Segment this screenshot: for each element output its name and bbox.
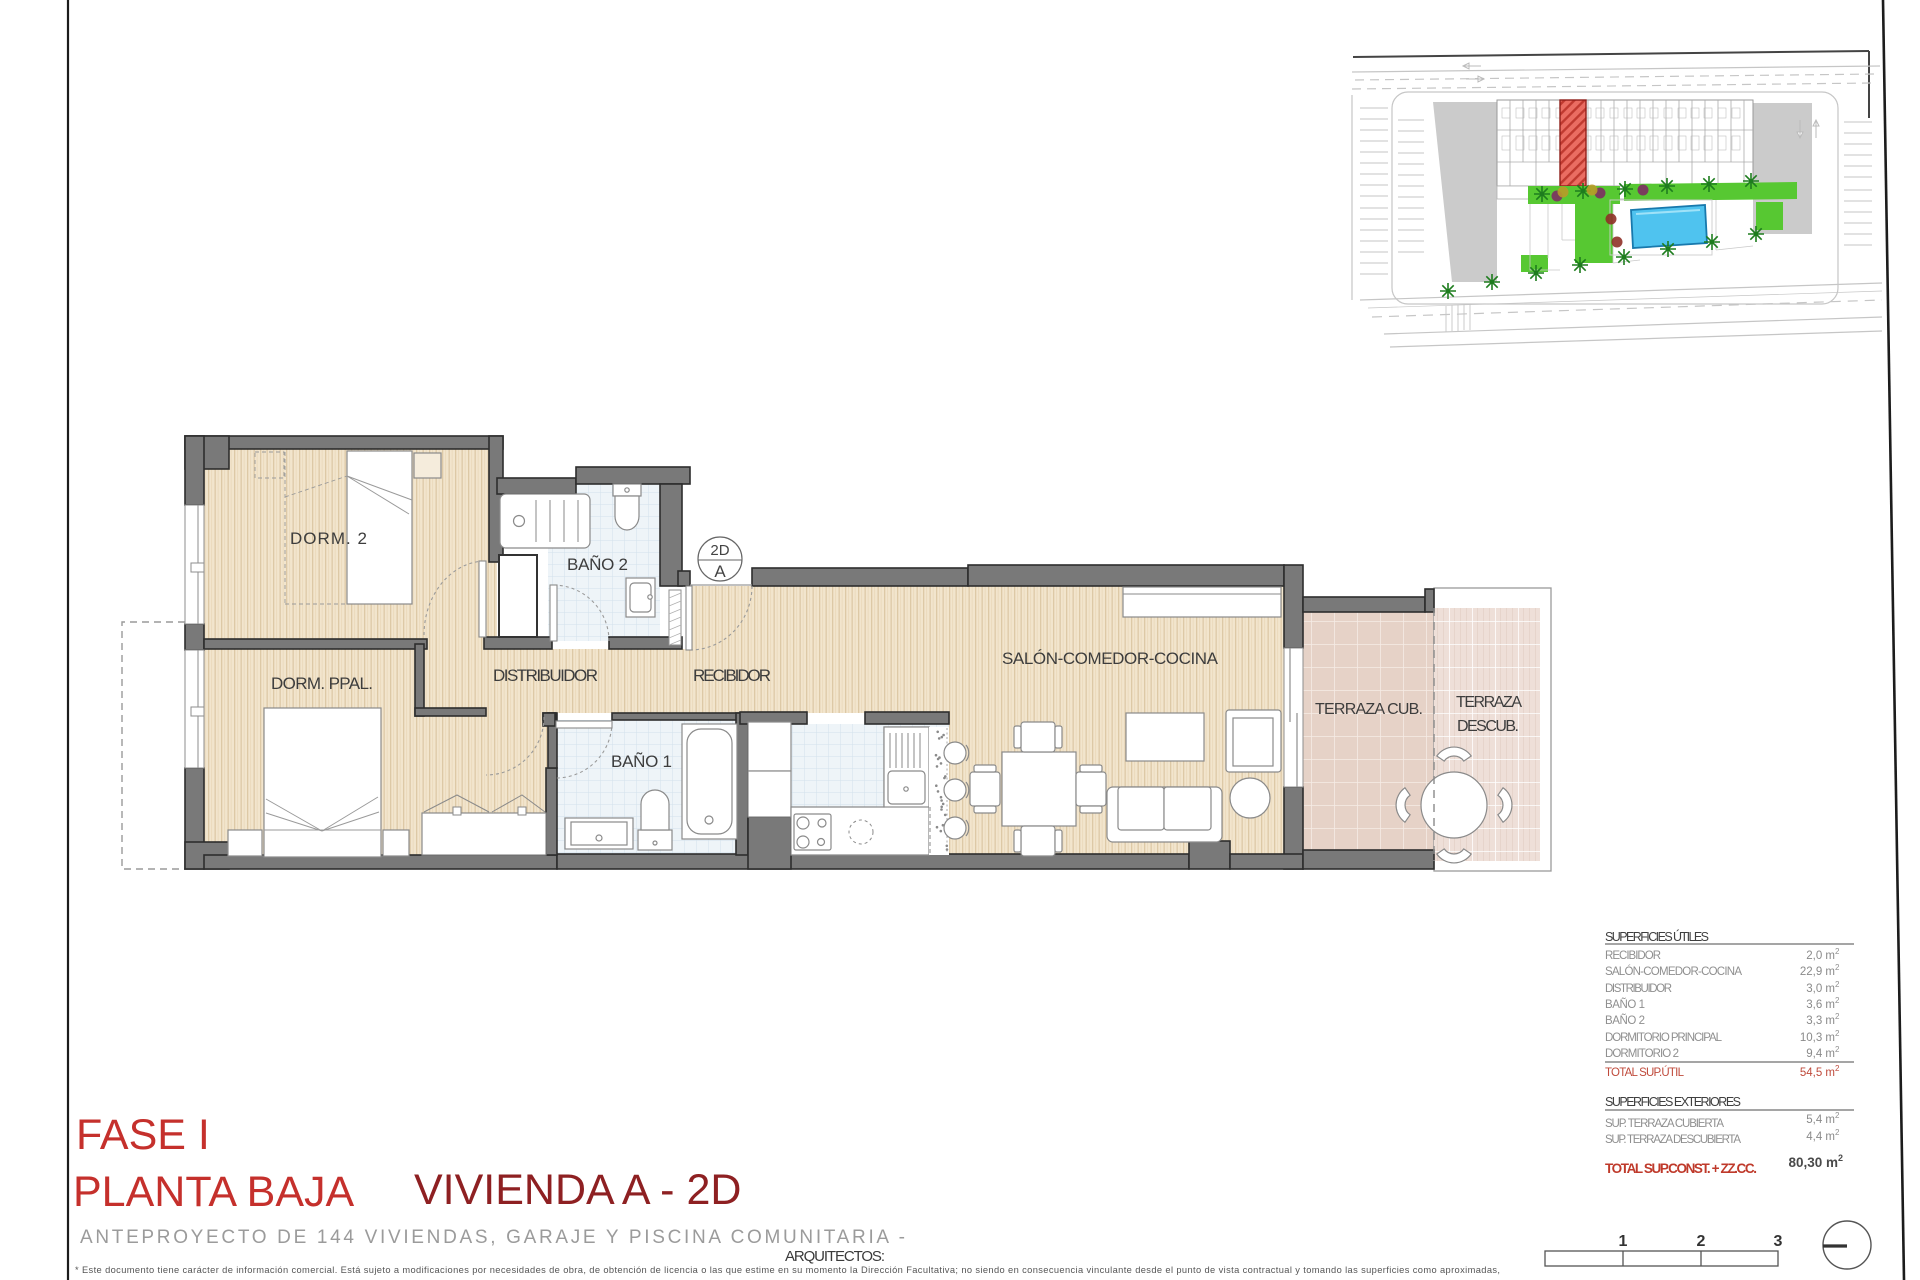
svg-text:10,3 m: 10,3 m — [1800, 1032, 1835, 1044]
svg-text:80,30 m: 80,30 m — [1788, 1155, 1838, 1170]
svg-text:2: 2 — [1838, 1153, 1843, 1163]
svg-text:PLANTA BAJA: PLANTA BAJA — [73, 1168, 355, 1216]
svg-text:DORMITORIO 2: DORMITORIO 2 — [1605, 1048, 1679, 1060]
svg-text:SUPERFICIES EXTERIORES: SUPERFICIES EXTERIORES — [1605, 1095, 1741, 1109]
svg-text:4,4 m: 4,4 m — [1806, 1131, 1835, 1143]
svg-text:TOTAL SUP.ÚTIL: TOTAL SUP.ÚTIL — [1605, 1066, 1685, 1079]
svg-text:DISTRIBUIDOR: DISTRIBUIDOR — [493, 666, 598, 685]
svg-text:DISTRIBUIDOR: DISTRIBUIDOR — [1605, 983, 1672, 995]
svg-text:2: 2 — [1835, 1128, 1840, 1137]
svg-text:RECIBIDOR: RECIBIDOR — [693, 666, 771, 685]
svg-text:SALÓN-COMEDOR-COCINA: SALÓN-COMEDOR-COCINA — [1605, 965, 1742, 978]
svg-text:ARQUITECTOS:: ARQUITECTOS: — [785, 1248, 885, 1265]
svg-text:2: 2 — [1835, 996, 1840, 1005]
svg-text:BAÑO 2: BAÑO 2 — [567, 555, 628, 574]
svg-text:2: 2 — [1835, 1029, 1840, 1038]
svg-text:A: A — [714, 562, 726, 581]
svg-text:22,9 m: 22,9 m — [1800, 966, 1835, 978]
svg-text:BAÑO 2: BAÑO 2 — [1605, 1014, 1645, 1027]
svg-text:2: 2 — [1697, 1233, 1706, 1250]
svg-text:SUP. TERRAZA DESCUBIERTA: SUP. TERRAZA DESCUBIERTA — [1605, 1134, 1741, 1146]
svg-text:BAÑO 1: BAÑO 1 — [1605, 998, 1645, 1011]
svg-text:ANTEPROYECTO DE 144 VIVIENDAS,: ANTEPROYECTO DE 144 VIVIENDAS, GARAJE Y … — [80, 1227, 905, 1248]
svg-text:* Este documento tiene carácte: * Este documento tiene carácter de infor… — [75, 1265, 1500, 1275]
svg-text:RECIBIDOR: RECIBIDOR — [1605, 950, 1661, 962]
svg-text:5,4 m: 5,4 m — [1806, 1114, 1835, 1126]
svg-text:SUP. TERRAZA CUBIERTA: SUP. TERRAZA CUBIERTA — [1605, 1118, 1724, 1130]
svg-text:2,0 m: 2,0 m — [1806, 950, 1835, 962]
svg-text:2: 2 — [1835, 947, 1840, 956]
svg-text:DORMITORIO PRINCIPAL: DORMITORIO PRINCIPAL — [1605, 1032, 1723, 1044]
svg-text:3,0 m: 3,0 m — [1806, 983, 1835, 995]
svg-text:2: 2 — [1835, 1064, 1840, 1073]
svg-text:2: 2 — [1835, 1012, 1840, 1021]
svg-text:2D: 2D — [710, 542, 729, 559]
svg-text:TOTAL SUP.CONST. + ZZ.CC.: TOTAL SUP.CONST. + ZZ.CC. — [1605, 1161, 1757, 1176]
svg-text:1: 1 — [1619, 1233, 1628, 1250]
svg-text:3: 3 — [1774, 1233, 1783, 1250]
svg-text:DORM. 2: DORM. 2 — [290, 529, 367, 548]
svg-text:DESCUB.: DESCUB. — [1457, 718, 1519, 735]
svg-text:3,3 m: 3,3 m — [1806, 1015, 1835, 1027]
svg-text:BAÑO 1: BAÑO 1 — [611, 752, 672, 771]
svg-text:TERRAZA: TERRAZA — [1456, 694, 1522, 711]
svg-text:2: 2 — [1835, 1045, 1840, 1054]
svg-text:2: 2 — [1835, 980, 1840, 989]
svg-text:2: 2 — [1835, 1111, 1840, 1120]
svg-text:FASE I: FASE I — [76, 1111, 210, 1159]
svg-text:DORM. PPAL.: DORM. PPAL. — [271, 674, 373, 693]
svg-text:VIVIENDA A - 2D: VIVIENDA A - 2D — [414, 1166, 741, 1214]
svg-text:54,5 m: 54,5 m — [1800, 1067, 1835, 1079]
svg-text:TERRAZA CUB.: TERRAZA CUB. — [1315, 701, 1423, 718]
svg-text:9,4 m: 9,4 m — [1806, 1048, 1835, 1060]
svg-text:SUPERFICIES ÚTILES: SUPERFICIES ÚTILES — [1605, 929, 1709, 944]
svg-text:3,6 m: 3,6 m — [1806, 999, 1835, 1011]
svg-text:SALÓN-COMEDOR-COCINA: SALÓN-COMEDOR-COCINA — [1002, 649, 1219, 668]
svg-text:2: 2 — [1835, 963, 1840, 972]
